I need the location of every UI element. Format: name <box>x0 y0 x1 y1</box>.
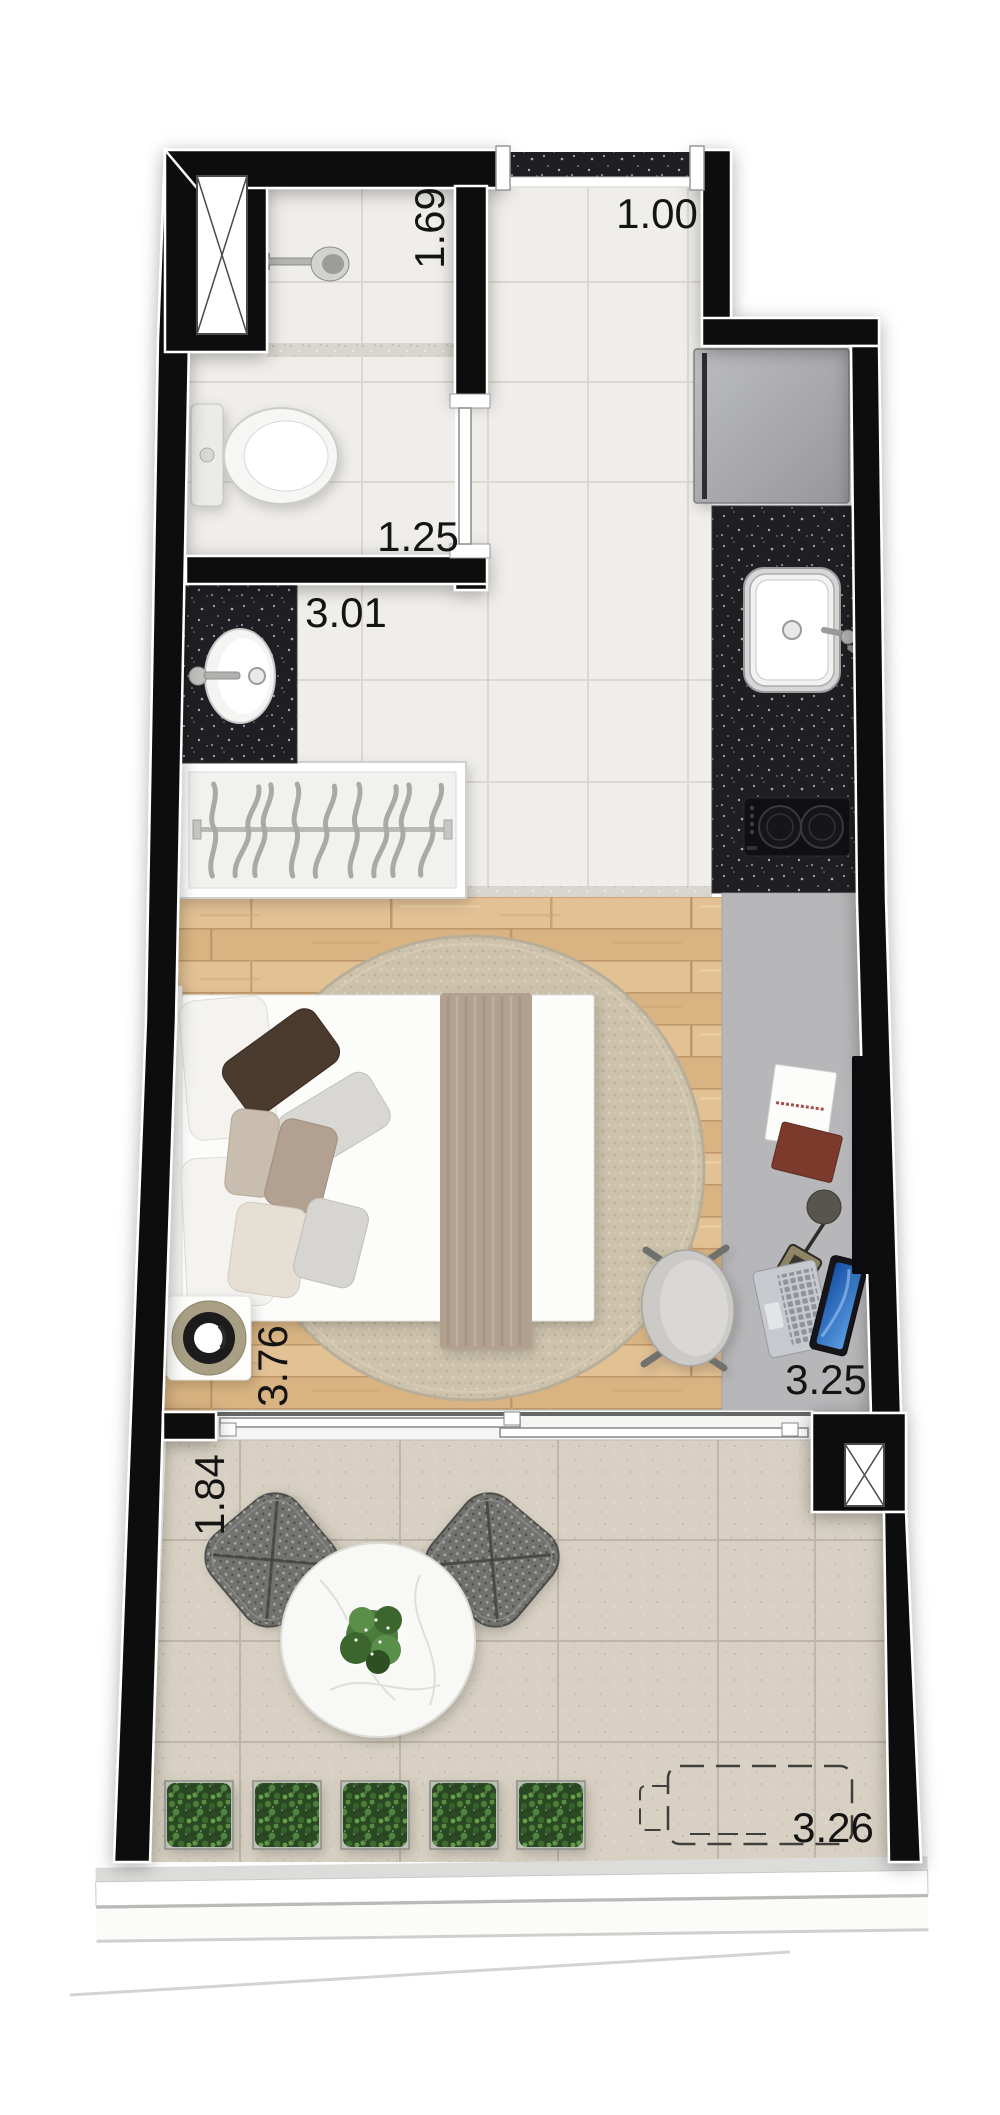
balcony-right-wall <box>884 1512 921 1862</box>
door-panel-1 <box>220 1418 520 1427</box>
studio-floorplan: 1.00 1.69 1.25 3.01 3.76 3.25 1.84 3.26 <box>0 0 1000 2115</box>
planter <box>165 1781 233 1849</box>
balcony-table <box>281 1543 475 1737</box>
step-wall <box>702 318 879 346</box>
kitchen-counter <box>712 506 863 893</box>
vanity-sink <box>181 583 297 763</box>
shaft-hatch-box <box>197 176 247 334</box>
shower-curb <box>267 343 455 357</box>
planter <box>253 1781 321 1849</box>
table-plant <box>340 1606 408 1674</box>
closet-rod <box>196 827 449 832</box>
planter <box>517 1781 585 1849</box>
floorplan-svg <box>0 0 1000 2115</box>
floor-speaker <box>167 1296 251 1380</box>
bathroom-bottom-wall <box>186 556 487 584</box>
glass-railing <box>96 1856 929 1943</box>
door-jamb <box>690 146 704 190</box>
double-bed <box>168 986 594 1349</box>
cooktop <box>744 798 850 856</box>
right-top-wall <box>702 150 731 322</box>
door-jamb <box>496 146 510 190</box>
bathroom-wall <box>455 186 487 400</box>
planter <box>430 1781 498 1849</box>
balcony-hatch-box <box>845 1444 884 1506</box>
wall-tv <box>852 1056 872 1274</box>
toilet <box>191 404 338 506</box>
drain <box>249 668 265 684</box>
sidewalk-edge <box>70 1952 790 1995</box>
door-jamb <box>450 544 490 558</box>
door-panel-2 <box>500 1428 808 1437</box>
door-jamb <box>450 394 490 408</box>
planter-boxes <box>165 1781 585 1849</box>
refrigerator <box>694 349 849 503</box>
faucet-arm <box>204 672 240 679</box>
sliding-glass-door <box>214 1410 814 1440</box>
entrance-threshold <box>496 146 704 190</box>
door-leaf <box>459 408 471 544</box>
door-stub-wall <box>163 1412 216 1440</box>
throw-blanket <box>440 993 532 1349</box>
planter <box>341 1781 409 1849</box>
wardrobe-closet <box>179 762 466 898</box>
